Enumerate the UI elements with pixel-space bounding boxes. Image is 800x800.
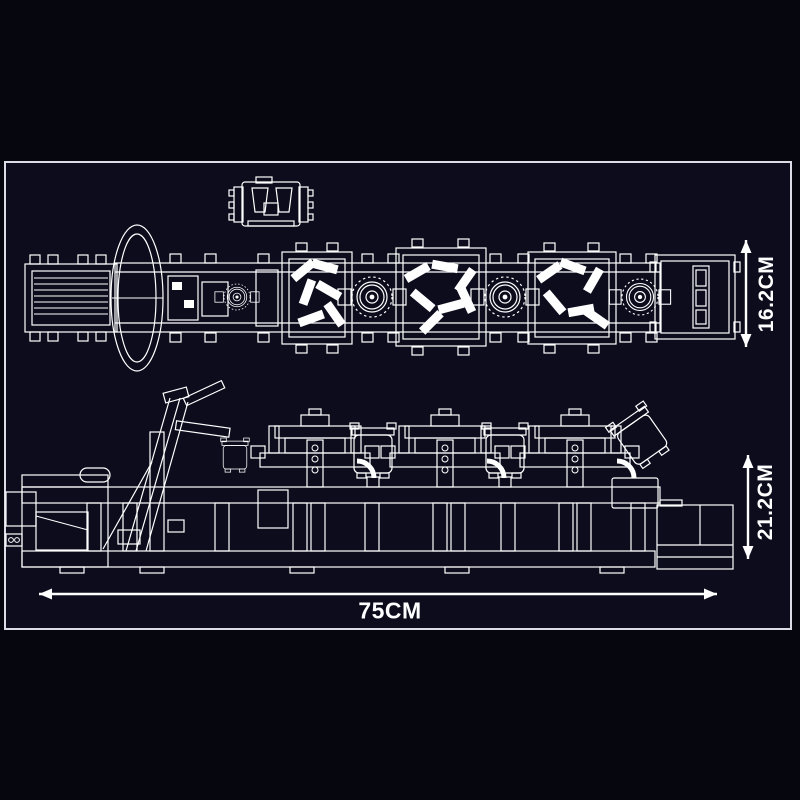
end-box: [657, 500, 733, 569]
rotary-disc: [111, 225, 163, 371]
brick-tray-module: [528, 243, 616, 353]
top-view-drawing: [25, 225, 740, 371]
battery-box-part: [229, 177, 313, 226]
press-assembly: [251, 409, 379, 487]
press-assembly: [381, 409, 509, 487]
press-assembly: [511, 409, 639, 487]
dimension-label-length: 75CM: [358, 598, 421, 625]
turntable-bearing: [215, 284, 259, 310]
turntable-bearing: [471, 277, 539, 317]
tilted-basket: [606, 401, 675, 472]
ladder-section: [25, 255, 117, 341]
brick-tray-module: [282, 243, 352, 353]
dimension-label-top-height: 16.2CM: [755, 256, 779, 333]
truss-posts: [87, 503, 645, 551]
left-housing: [6, 468, 110, 567]
stud-plate: [650, 255, 740, 339]
dimension-label-side-height: 21.2CM: [754, 464, 778, 541]
side-view-drawing: [6, 381, 733, 573]
basket: [482, 423, 528, 478]
machine-line-drawing: [0, 0, 800, 800]
brick-tray-module: [396, 239, 486, 355]
